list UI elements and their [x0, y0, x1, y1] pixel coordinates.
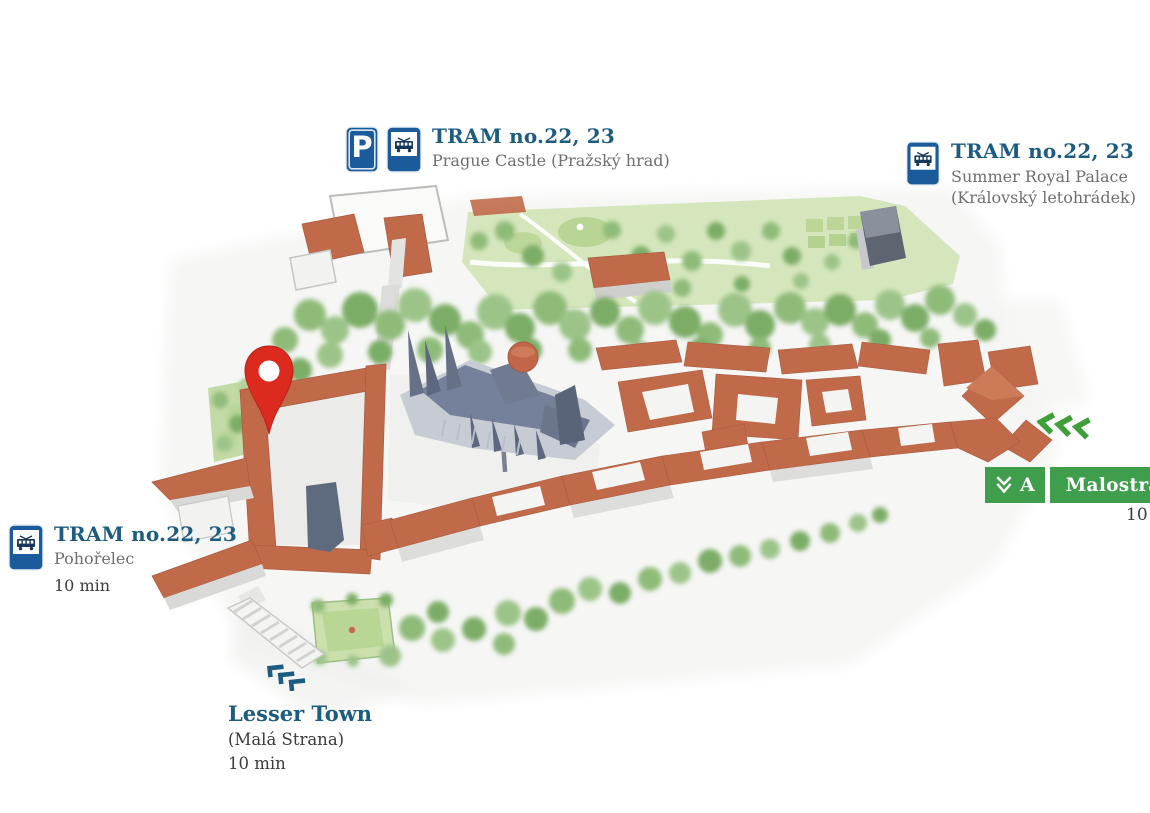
stop-title: TRAM no.22, 23	[951, 141, 1136, 163]
walk-time: 10 min	[54, 576, 237, 596]
location-pin-icon[interactable]	[241, 344, 297, 442]
stop-title: TRAM no.22, 23	[432, 126, 670, 148]
stop-name: Pohořelec	[54, 549, 237, 569]
tram-stop-sign-icon	[905, 141, 941, 190]
stop-name: Prague Castle (Pražský hrad)	[432, 151, 670, 171]
stop-prague-castle[interactable]: P TRAM no.22, 23 Prague Castle (Pražský …	[345, 126, 670, 177]
lesser-town-title: Lesser Town	[228, 703, 458, 725]
prague-metro-logo-icon	[993, 475, 1015, 495]
metro-station-malostranska[interactable]: A Malostranská	[985, 467, 1150, 503]
metro-line-a-badge: A	[985, 467, 1045, 503]
castle-map-illustration	[0, 0, 1150, 813]
lesser-town-label[interactable]: Lesser Town (Malá Strana) 10 min	[228, 663, 458, 773]
stop-summer-royal-palace[interactable]: TRAM no.22, 23 Summer Royal Palace (Král…	[905, 141, 1136, 208]
tram-stop-sign-icon	[386, 126, 422, 177]
tram-stop-sign-icon	[8, 524, 44, 575]
metro-line-letter: A	[1020, 474, 1035, 496]
parking-letter: P	[345, 130, 379, 164]
stairs-chevrons-icon	[268, 663, 458, 703]
parking-sign-icon: P	[345, 126, 379, 177]
walk-time: 10 min	[228, 754, 458, 773]
lesser-town-name: (Malá Strana)	[228, 730, 458, 749]
stop-title: TRAM no.22, 23	[54, 524, 237, 546]
stop-name-line1: Summer Royal Palace	[951, 167, 1136, 187]
metro-station-name: Malostranská	[1050, 467, 1150, 503]
stop-name-line2: (Královský letohrádek)	[951, 188, 1136, 208]
metro-walk-time: 10 min	[1126, 505, 1150, 525]
stop-pohorelec[interactable]: TRAM no.22, 23 Pohořelec 10 min	[8, 524, 237, 596]
